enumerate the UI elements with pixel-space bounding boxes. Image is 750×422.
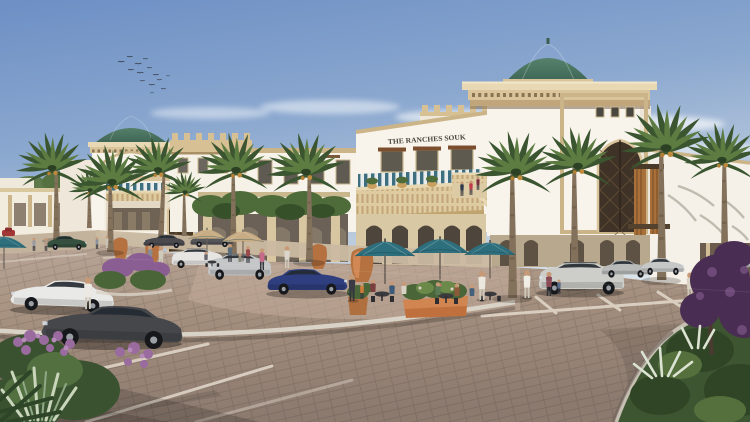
souk-rendering-scene: THE RANCHES SOUK [0,0,750,422]
rendering-canvas: THE RANCHES SOUK [0,0,750,422]
facade-windows [378,146,476,173]
